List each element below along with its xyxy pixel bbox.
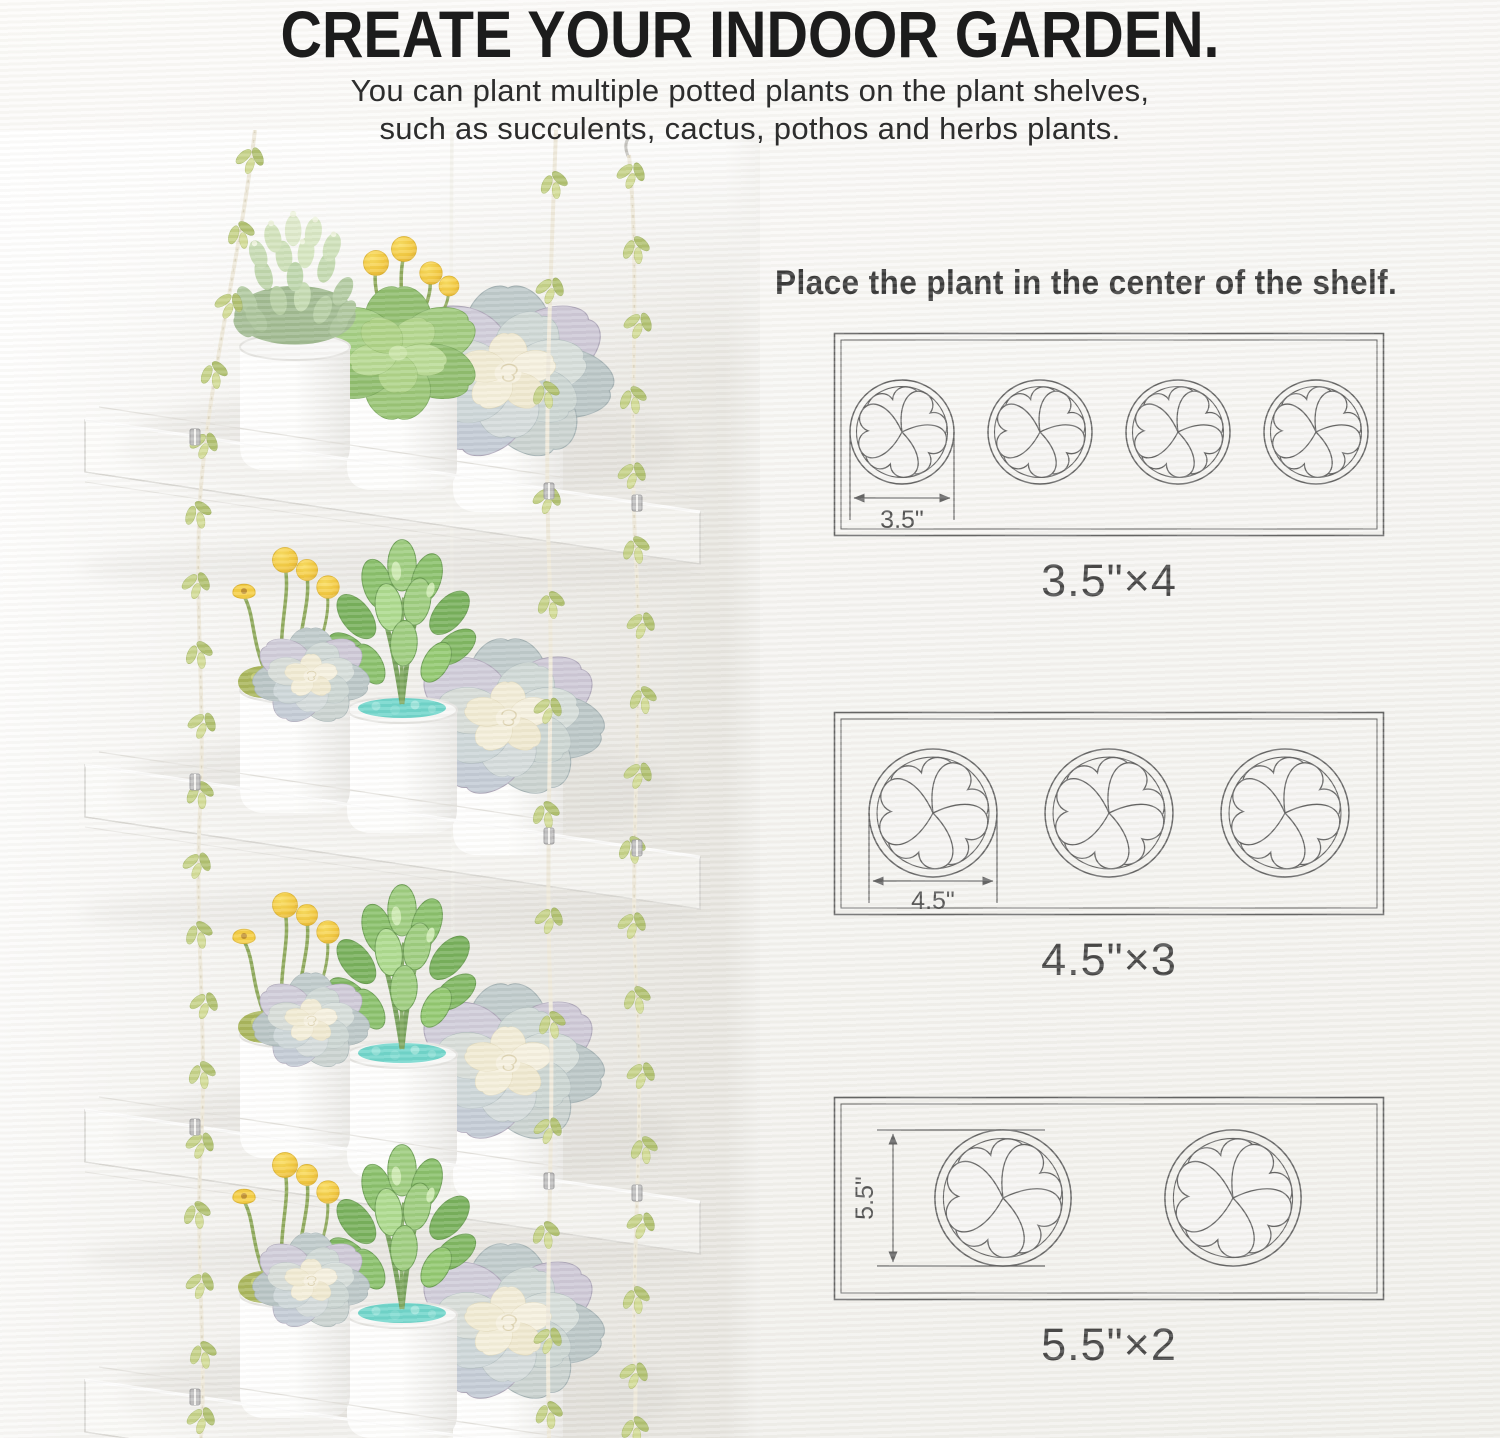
- page-title: CREATE YOUR INDOOR GARDEN.: [98, 0, 1403, 68]
- pot-circle: [850, 380, 954, 484]
- shelf-top-view-3-pots: 4.5": [833, 711, 1385, 916]
- pot-circle: [935, 1130, 1071, 1266]
- pot-circle: [1264, 380, 1368, 484]
- placement-heading: Place the plant in the center of the she…: [775, 262, 1426, 304]
- header: CREATE YOUR INDOOR GARDEN. You can plant…: [0, 0, 1500, 148]
- product-photo: [0, 130, 760, 1438]
- diagram-caption: 3.5"×4: [833, 555, 1385, 607]
- shelf-diagram-3-pots: 4.5" 4.5"×3: [775, 711, 1475, 986]
- shelf-diagram-4-pots: 3.5" 3.5"×4: [775, 332, 1475, 607]
- pot-circle: [1165, 1130, 1301, 1266]
- hanging-plant-shelves-photo: [0, 130, 760, 1438]
- svg-text:3.5": 3.5": [880, 506, 924, 534]
- product-infographic: CREATE YOUR INDOOR GARDEN. You can plant…: [0, 0, 1500, 1438]
- subtitle-line-1: You can plant multiple potted plants on …: [0, 72, 1500, 110]
- pot-circle: [869, 749, 997, 877]
- pot-circle: [988, 380, 1092, 484]
- svg-text:4.5": 4.5": [911, 887, 955, 915]
- pot-circle: [1221, 749, 1349, 877]
- pot-circle: [1126, 380, 1230, 484]
- shelf-diagram-2-pots: 5.5" 5.5"×2: [775, 1096, 1475, 1371]
- svg-text:5.5": 5.5": [851, 1176, 879, 1220]
- pot-circle: [1045, 749, 1173, 877]
- diagram-caption: 5.5"×2: [833, 1319, 1385, 1371]
- diagram-caption: 4.5"×3: [833, 934, 1385, 986]
- subtitle-line-2: such as succulents, cactus, pothos and h…: [0, 110, 1500, 148]
- shelf-top-view-2-pots: 5.5": [833, 1096, 1385, 1301]
- shelf-top-view-4-pots: 3.5": [833, 332, 1385, 537]
- placement-guide: Place the plant in the center of the she…: [775, 262, 1475, 1371]
